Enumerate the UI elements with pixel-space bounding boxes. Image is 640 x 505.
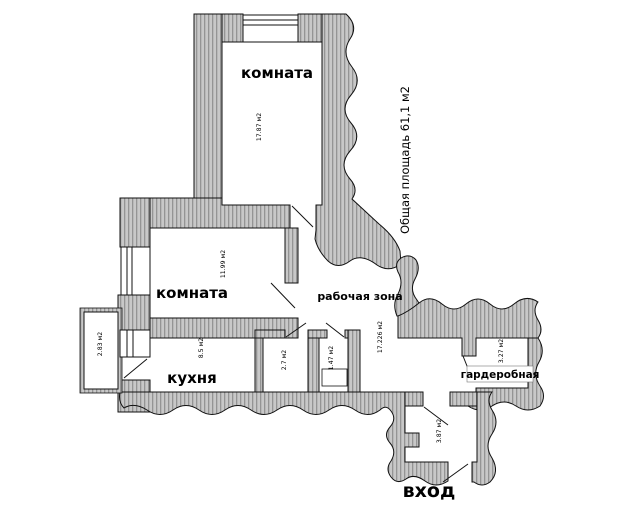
- wall-entry-top-right: [450, 392, 477, 406]
- room-top-area: 17.87 м2: [256, 113, 263, 141]
- work-zone-area: 17.226 м2: [377, 321, 384, 353]
- kitchen-label: кухня: [167, 369, 217, 387]
- labels: комната 17.87 м2 комната 11.99 м2 кухня …: [97, 64, 539, 502]
- wall-bath-right: [348, 330, 360, 392]
- door-balcony: [124, 359, 147, 378]
- room-mid-label: комната: [156, 284, 228, 302]
- wall-room-top-left: [194, 14, 222, 228]
- wardrobe-area: 3.27 м2: [498, 339, 505, 363]
- wall-left-col-mid: [118, 295, 150, 330]
- door-room-mid: [271, 283, 295, 308]
- room-top-label: комната: [241, 64, 313, 82]
- door-wc: [326, 323, 344, 337]
- wall-bath-mid: [308, 338, 319, 392]
- wall-left-col-upper: [120, 198, 150, 247]
- window-room-mid: [121, 247, 150, 295]
- entry-hall-area: 3.87 м2: [436, 419, 443, 443]
- work-zone-label: рабочая зона: [317, 290, 402, 303]
- floor-plan: комната 17.87 м2 комната 11.99 м2 кухня …: [0, 0, 640, 505]
- wall-room-top-top-a: [222, 14, 243, 42]
- wall-wardrobe-band-torn: [398, 298, 541, 356]
- wc-fixture: [322, 369, 347, 386]
- wall-bath-left: [255, 330, 263, 392]
- entrance-label: вход: [403, 480, 456, 502]
- door-room-top: [292, 206, 313, 227]
- wall-entry-top-left: [405, 392, 423, 406]
- wall-bath-top-a: [255, 330, 285, 338]
- wc-area: 1.47 м2: [328, 346, 335, 370]
- window-room-top: [243, 14, 298, 42]
- floor-plan-svg: комната 17.87 м2 комната 11.99 м2 кухня …: [0, 0, 640, 505]
- wall-bottom-band-torn: [120, 392, 449, 485]
- wall-bath-top-b: [308, 330, 327, 338]
- wardrobe-label: гардеробная: [461, 369, 540, 381]
- room-mid-area: 11.99 м2: [220, 250, 227, 278]
- wall-room-top-right-torn: [315, 14, 401, 269]
- total-area-label: Общая площадь 61,1 м2: [398, 86, 412, 234]
- kitchen-area: 8.5 м2: [198, 338, 205, 358]
- balcony-area: 2.83 м2: [97, 332, 104, 356]
- bathroom-area: 2.7 м2: [281, 350, 288, 370]
- wall-room-mid-right: [285, 228, 298, 283]
- wall-room-top-top-b: [298, 14, 322, 42]
- window-kitchen: [120, 330, 150, 357]
